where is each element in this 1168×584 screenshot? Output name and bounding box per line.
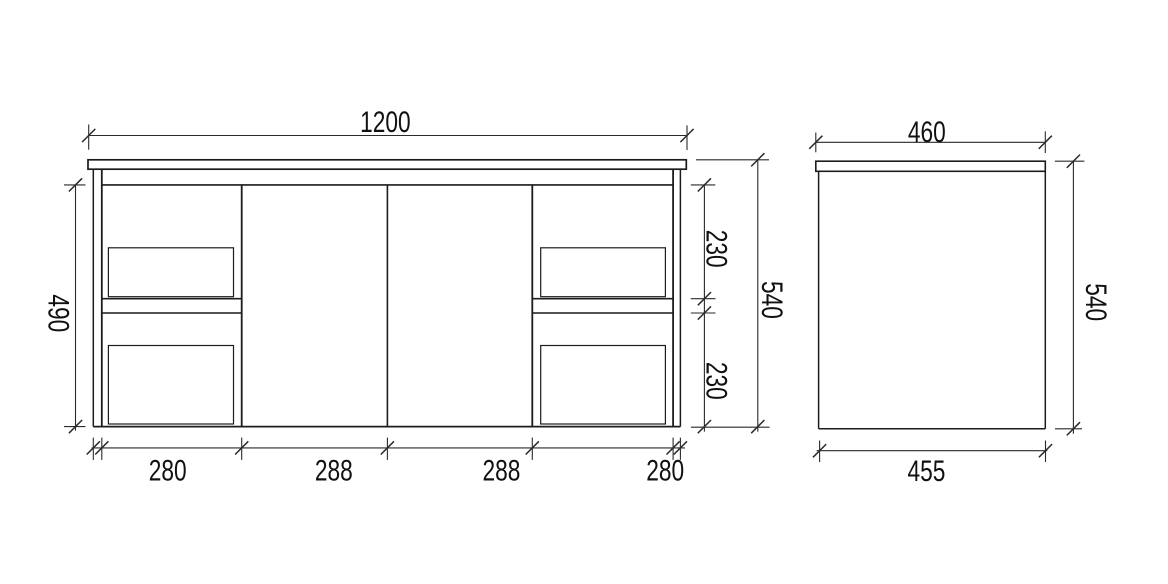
svg-text:455: 455 [908, 454, 946, 488]
svg-text:288: 288 [315, 453, 353, 487]
svg-text:540: 540 [1079, 283, 1113, 321]
svg-text:230: 230 [700, 230, 734, 268]
svg-text:280: 280 [646, 453, 684, 487]
svg-text:540: 540 [755, 281, 789, 319]
svg-text:460: 460 [908, 115, 946, 149]
svg-text:280: 280 [149, 453, 187, 487]
svg-text:490: 490 [42, 294, 76, 332]
svg-text:1200: 1200 [360, 105, 411, 139]
svg-text:288: 288 [482, 453, 520, 487]
svg-text:230: 230 [700, 362, 734, 400]
